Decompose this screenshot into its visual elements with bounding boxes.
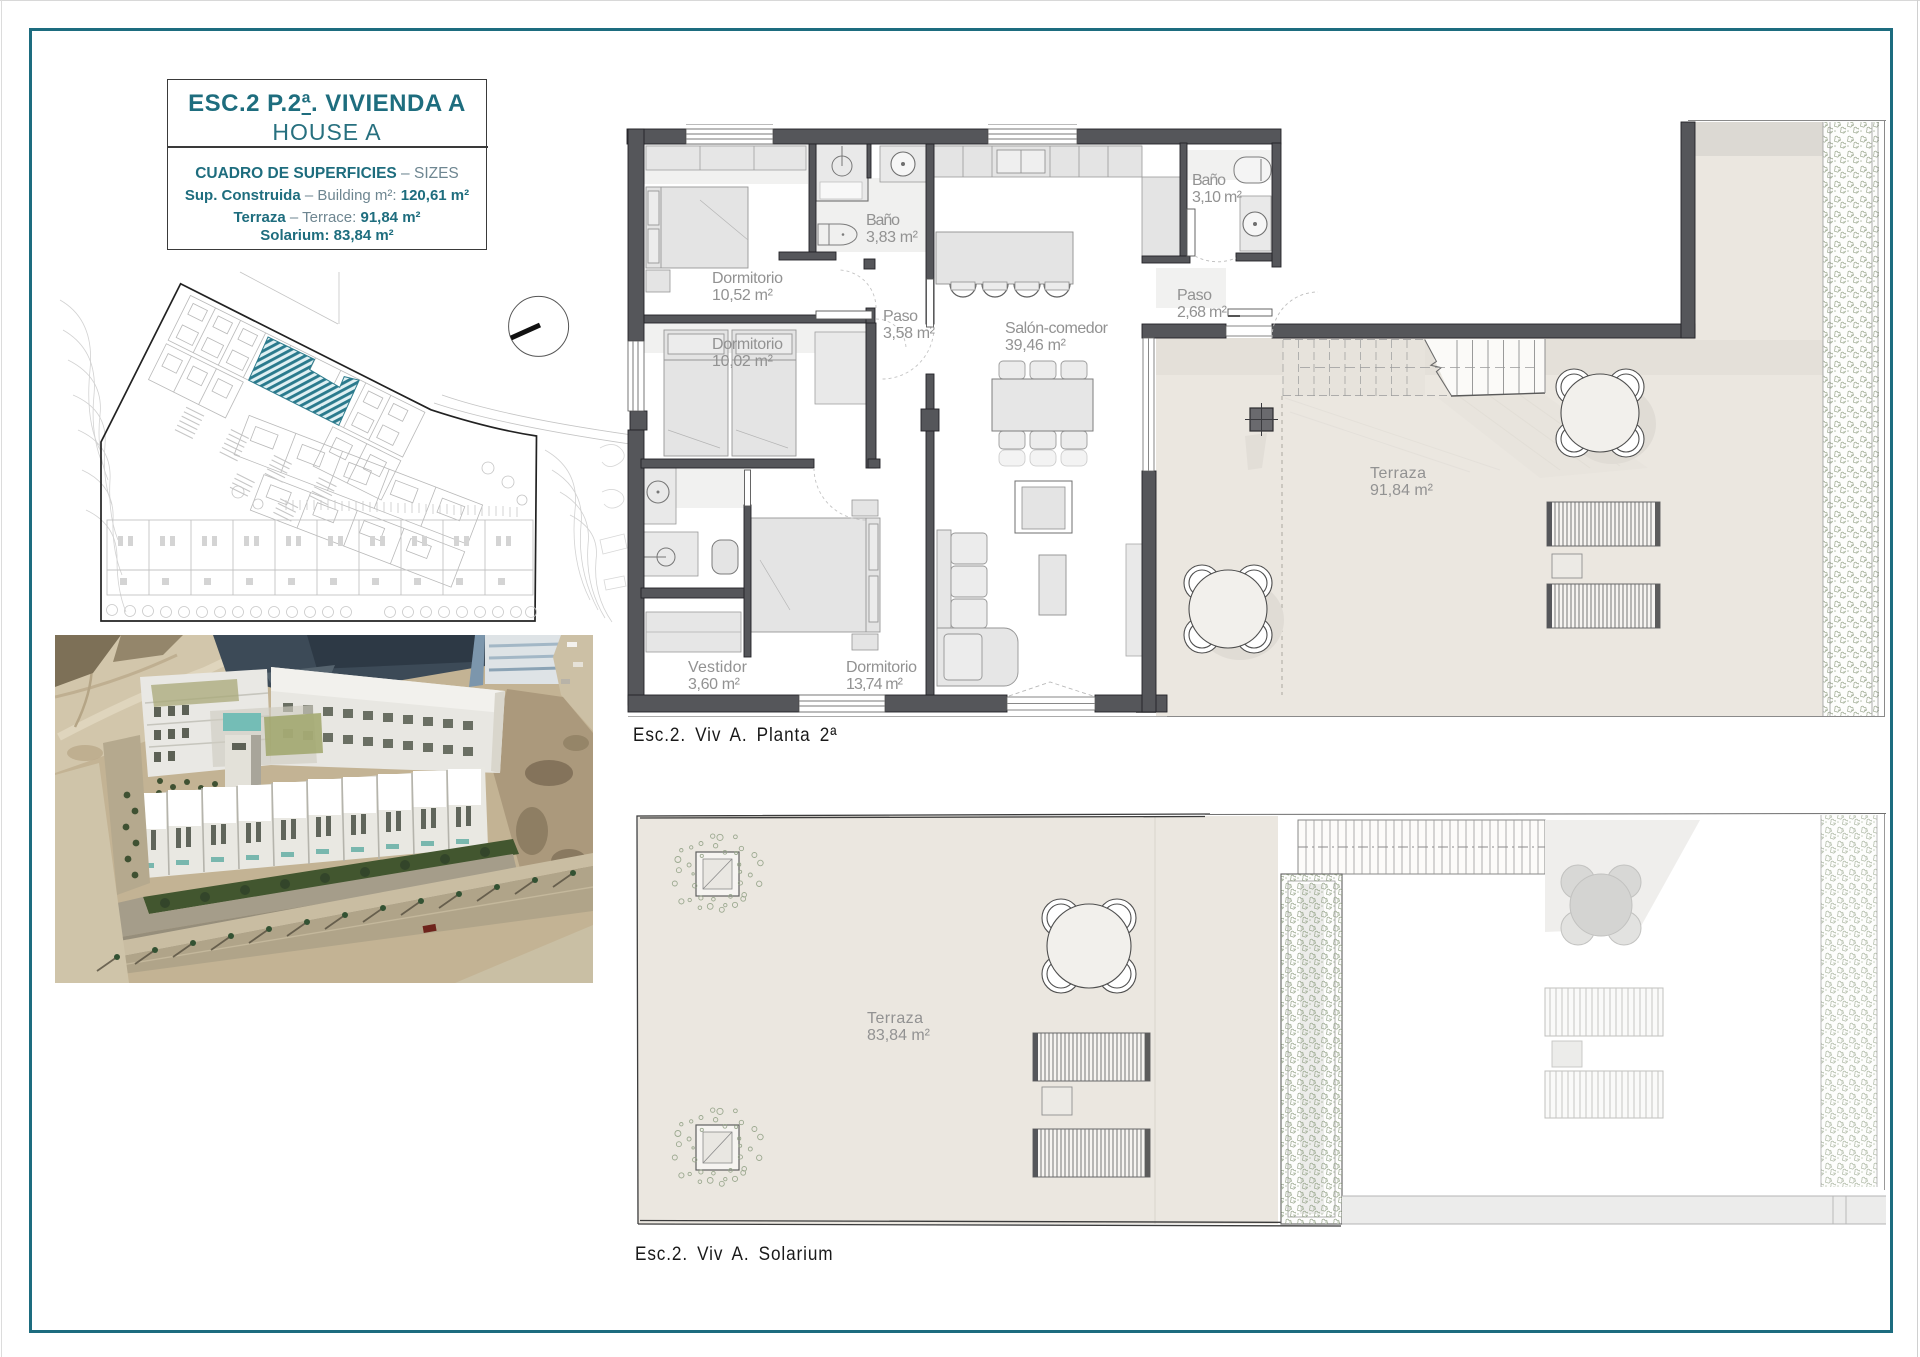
svg-text:10,02 m²: 10,02 m² [712, 353, 774, 370]
svg-text:Dormitorio: Dormitorio [846, 659, 917, 676]
svg-text:Terraza: Terraza [867, 1010, 923, 1027]
svg-text:Salón-comedor: Salón-comedor [1005, 320, 1109, 337]
svg-text:10,52 m²: 10,52 m² [712, 287, 774, 304]
svg-text:Vestidor: Vestidor [688, 659, 748, 676]
svg-text:3,60 m²: 3,60 m² [688, 676, 741, 693]
svg-text:13,74 m²: 13,74 m² [846, 676, 904, 693]
svg-text:Dormitorio: Dormitorio [712, 270, 783, 287]
svg-text:Dormitorio: Dormitorio [712, 336, 783, 353]
svg-text:3,83 m²: 3,83 m² [866, 229, 919, 246]
svg-text:Paso: Paso [883, 308, 918, 325]
svg-text:2,68 m²: 2,68 m² [1177, 304, 1228, 321]
svg-text:Terraza: Terraza [1370, 465, 1426, 482]
svg-text:Baño: Baño [1192, 172, 1226, 189]
svg-text:3,58 m²: 3,58 m² [883, 325, 936, 342]
svg-text:3,10 m²: 3,10 m² [1192, 189, 1243, 206]
svg-text:Baño: Baño [866, 212, 900, 229]
svg-text:39,46 m²: 39,46 m² [1005, 337, 1067, 354]
svg-text:91,84 m²: 91,84 m² [1370, 482, 1434, 499]
svg-text:Paso: Paso [1177, 287, 1212, 304]
svg-text:83,84 m²: 83,84 m² [867, 1027, 931, 1044]
